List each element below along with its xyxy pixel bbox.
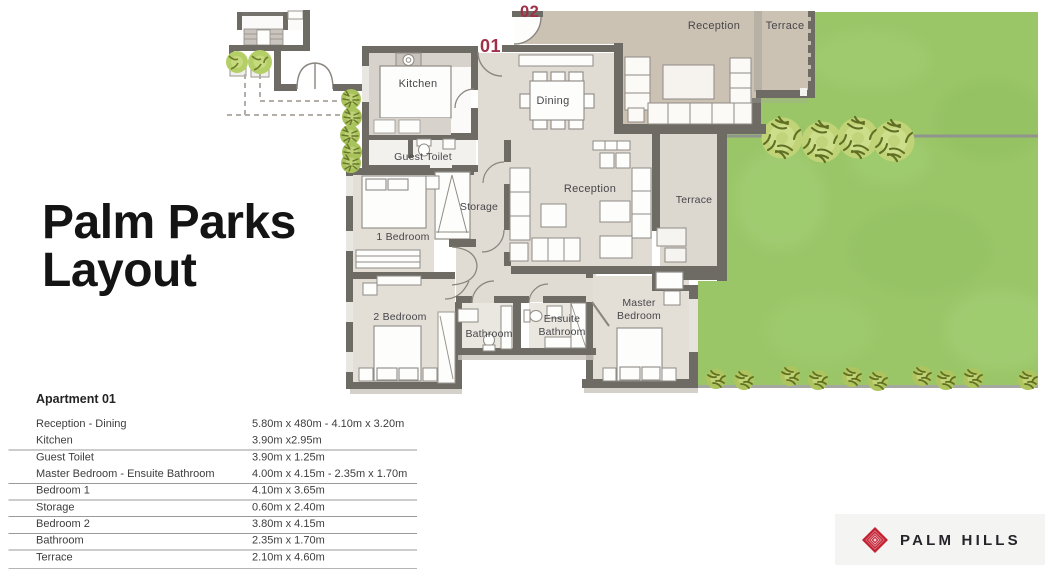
svg-text:3.80m x 4.15m: 3.80m x 4.15m [252, 518, 325, 530]
svg-text:Reception - Dining: Reception - Dining [36, 418, 127, 430]
svg-text:Palm Parks: Palm Parks [42, 196, 296, 249]
svg-text:Bedroom 2: Bedroom 2 [36, 518, 90, 530]
svg-text:Guest Toilet: Guest Toilet [36, 452, 94, 464]
svg-text:Bathroom: Bathroom [465, 328, 512, 340]
svg-text:3.90m x 1.25m: 3.90m x 1.25m [252, 452, 325, 464]
svg-text:Apartment 01: Apartment 01 [36, 392, 116, 406]
svg-text:Terrace: Terrace [36, 552, 73, 564]
svg-text:02: 02 [520, 3, 539, 21]
svg-text:Terrace: Terrace [676, 194, 712, 206]
svg-text:Bathroom: Bathroom [36, 535, 84, 547]
svg-text:Bathroom: Bathroom [538, 326, 585, 338]
svg-text:PALM HILLS: PALM HILLS [900, 532, 1021, 549]
svg-text:Terrace: Terrace [766, 20, 805, 32]
svg-text:2.10m x 4.60m: 2.10m x 4.60m [252, 552, 325, 564]
svg-text:2 Bedroom: 2 Bedroom [373, 311, 426, 323]
svg-text:1 Bedroom: 1 Bedroom [376, 231, 429, 243]
svg-text:4.00m x 4.15m - 2.35m x 1.70m: 4.00m x 4.15m - 2.35m x 1.70m [252, 468, 407, 480]
svg-text:0.60m x 2.40m: 0.60m x 2.40m [252, 502, 325, 514]
svg-text:Reception: Reception [688, 20, 740, 32]
svg-text:Kitchen: Kitchen [36, 435, 73, 447]
svg-text:Storage: Storage [36, 502, 75, 514]
svg-text:Master: Master [622, 297, 656, 309]
svg-text:Reception: Reception [564, 183, 616, 195]
svg-text:Kitchen: Kitchen [399, 78, 438, 90]
svg-text:Dining: Dining [537, 95, 570, 107]
svg-text:Bedroom 1: Bedroom 1 [36, 485, 90, 497]
svg-text:3.90m x2.95m: 3.90m x2.95m [252, 435, 322, 447]
svg-text:Bedroom: Bedroom [617, 310, 661, 322]
svg-text:Guest Toilet: Guest Toilet [394, 151, 452, 163]
svg-text:Ensuite: Ensuite [544, 313, 580, 325]
svg-text:5.80m x 480m - 4.10m x 3.20m: 5.80m x 480m - 4.10m x 3.20m [252, 418, 404, 430]
svg-text:2.35m x 1.70m: 2.35m x 1.70m [252, 535, 325, 547]
svg-text:01: 01 [480, 36, 501, 56]
svg-text:4.10m x 3.65m: 4.10m x 3.65m [252, 485, 325, 497]
svg-text:Layout: Layout [42, 244, 197, 297]
svg-text:Master Bedroom - Ensuite Bathr: Master Bedroom - Ensuite Bathroom [36, 468, 215, 480]
svg-text:Storage: Storage [460, 201, 498, 213]
